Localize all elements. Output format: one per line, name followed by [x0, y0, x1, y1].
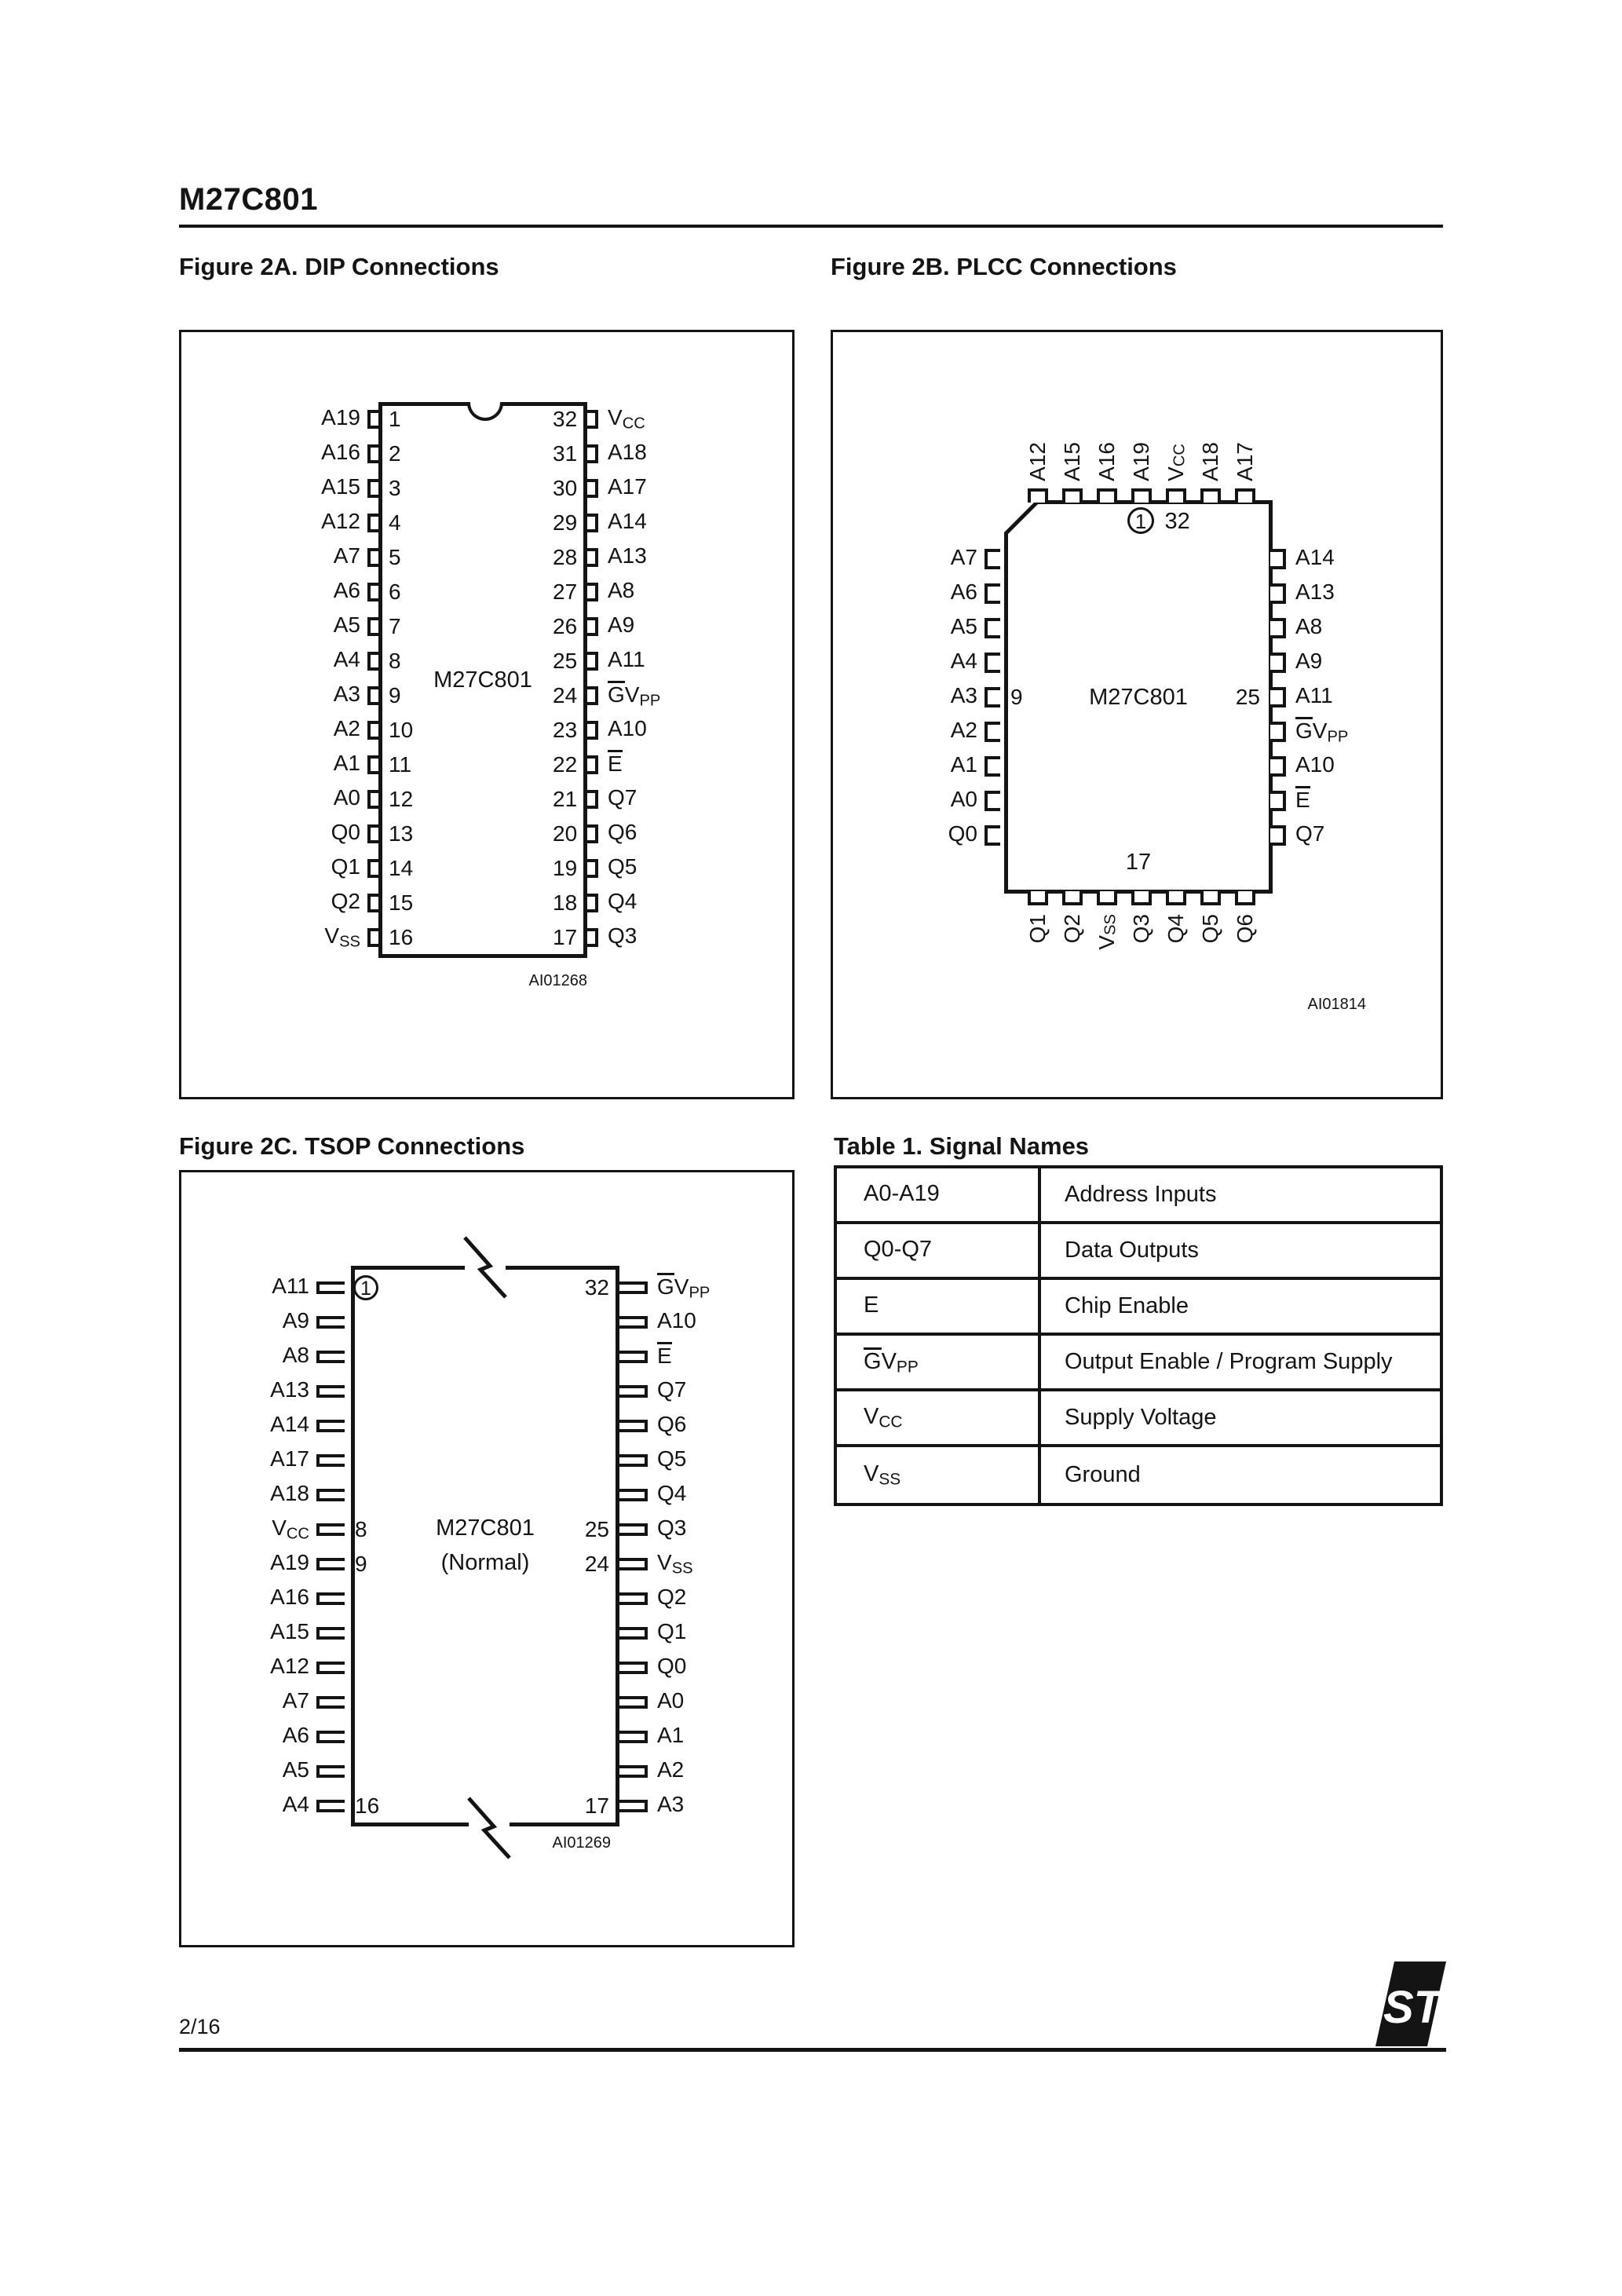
pin-label-text: A2 [951, 718, 977, 742]
pin-label-text: Q6 [657, 1412, 686, 1436]
pin-label-text: A5 [334, 612, 360, 637]
table-row: VCC Supply Voltage [837, 1391, 1440, 1447]
pin-label: A16 [1094, 442, 1123, 481]
pin-label: Q7 [648, 1377, 786, 1405]
pin-stub [367, 410, 378, 429]
pin-stub [587, 790, 598, 809]
pin-label-text: A11 [272, 1274, 309, 1298]
pin-stub [619, 1627, 648, 1640]
pin-row: A2 10 [243, 713, 432, 748]
pin-row: A15 3 [243, 471, 432, 506]
pin-stub [619, 1385, 648, 1398]
pin-stub [367, 617, 378, 636]
pin-stub [367, 548, 378, 567]
pin-cell: Q1 [1021, 891, 1055, 1033]
pin-label: Q1 [1025, 914, 1054, 943]
pin-row: 24 GVPP [553, 678, 732, 713]
pin-label: A4 [189, 1792, 316, 1819]
pin-label: A12 [189, 1654, 316, 1681]
pin-stub [587, 686, 598, 705]
pin-row: Q5 [582, 1443, 786, 1478]
pin-stub [985, 791, 1000, 811]
pin-row: 17 A3 [582, 1789, 786, 1823]
plcc-chip-label: M27C801 [1006, 685, 1270, 711]
overline-text: G [1295, 717, 1313, 743]
signal-name: GVPP [864, 1347, 919, 1377]
pin-number: 22 [553, 752, 587, 777]
pin-label-text: A9 [1295, 649, 1322, 673]
pin-number: 18 [553, 890, 587, 916]
pin-number: 5 [378, 545, 432, 570]
pin-label: A10 [648, 1308, 786, 1336]
signal-subscript: SS [879, 1470, 901, 1488]
pin-number: 27 [553, 579, 587, 605]
pin-row: A5 [853, 611, 1044, 645]
pin-label: A19 [1129, 442, 1157, 481]
overline-text: G [657, 1273, 674, 1299]
pin-stub [619, 1558, 648, 1570]
pin-label: Q2 [648, 1585, 786, 1612]
plcc-pin1-marker: 1 32 [1127, 507, 1190, 535]
pin1-circle-icon: 1 [1127, 507, 1154, 534]
pin-row: A1 [582, 1720, 786, 1754]
pin-row: 22 E [553, 748, 732, 782]
pin-row: Q7 [1233, 818, 1424, 853]
pin-label: GVPP [598, 681, 732, 710]
description-cell: Supply Voltage [1041, 1391, 1440, 1444]
pin-label: A14 [189, 1412, 316, 1439]
pin-label-text: A6 [951, 579, 977, 604]
pin-label-text: A1 [657, 1723, 684, 1747]
pin-row: A1 11 [243, 748, 432, 782]
pin-label: A5 [243, 612, 367, 640]
pin-number: 12 [378, 787, 432, 812]
st-logo-text: ST [1383, 1982, 1445, 2033]
pin-label-text: Q2 [1060, 914, 1084, 943]
pin-label-text: A2 [657, 1757, 684, 1782]
pin-label: A1 [853, 752, 985, 780]
pin-stub [985, 583, 1000, 604]
signal-cell: E [837, 1280, 1041, 1333]
pin-number: 32 [553, 407, 587, 432]
pin-row: A5 7 [243, 609, 432, 644]
pin-row: Q2 15 [243, 886, 432, 920]
pin-stub [619, 1489, 648, 1501]
pin-row: A2 [582, 1754, 786, 1789]
pin-label-subscript: CC [287, 1526, 309, 1543]
pin-row: 21 Q7 [553, 782, 732, 817]
pin-stub [587, 755, 598, 774]
pin-label-text: A16 [321, 440, 360, 464]
pin-label-subscript: CC [623, 415, 645, 433]
pin-stub [316, 1420, 345, 1432]
pin-stub [985, 653, 1000, 673]
tsop-top-break-icon [454, 1234, 520, 1300]
pin-stub [587, 894, 598, 912]
pin-label-text: Q6 [1233, 914, 1257, 943]
pin-stub [1097, 488, 1117, 503]
pin-label: A2 [243, 716, 367, 744]
pin-label-text: A13 [608, 543, 647, 568]
signal-text: E [864, 1292, 879, 1318]
pin-label-text: A18 [1198, 442, 1222, 481]
pin-label: A0 [243, 785, 367, 813]
pin-stub [1235, 488, 1255, 503]
pin-stub [316, 1558, 345, 1570]
pin-number: 17 [582, 1793, 619, 1819]
pin-label: Q4 [598, 889, 732, 916]
pin-label: VSS [243, 923, 367, 951]
pin-label-text: A17 [1233, 442, 1257, 481]
pin-stub [1097, 891, 1117, 905]
description-cell: Data Outputs [1041, 1224, 1440, 1277]
pin-stub [367, 894, 378, 912]
pin-stub [316, 1316, 345, 1329]
pin-stub [619, 1696, 648, 1709]
pin-label: A18 [1198, 442, 1226, 481]
page-title: M27C801 [179, 182, 318, 218]
pin-row: A11 1 [189, 1270, 403, 1305]
pin-row: A10 [1233, 749, 1424, 784]
pin-label-text: Q5 [608, 854, 637, 879]
pin-row: Q7 [582, 1374, 786, 1409]
pin-row: E [582, 1340, 786, 1374]
pin-label-text: Q2 [331, 889, 360, 913]
pin-label-text: A17 [270, 1446, 309, 1471]
pin-label-text: A18 [270, 1481, 309, 1505]
figure-2b-title: Figure 2B. PLCC Connections [831, 253, 1177, 281]
pin-row: 32 GVPP [582, 1270, 786, 1305]
description-cell: Address Inputs [1041, 1168, 1440, 1221]
figure-2a-title: Figure 2A. DIP Connections [179, 253, 499, 281]
pin-row: A6 [189, 1720, 403, 1754]
pin-number: 30 [553, 476, 587, 501]
pin-cell: VCC [1159, 371, 1193, 503]
tsop-figure-code: AI01269 [375, 1834, 611, 1852]
pin-stub [367, 721, 378, 740]
pin-label-text: Q7 [1295, 821, 1324, 846]
pin-label-text: A4 [283, 1792, 309, 1816]
page-number: 2/16 [179, 2015, 221, 2039]
overline-text: E [1295, 786, 1310, 812]
pin-stub [1270, 791, 1286, 811]
pin-number: 1 [353, 1275, 378, 1300]
pin-label-text: A17 [608, 474, 647, 499]
pin-cell: A16 [1090, 371, 1124, 503]
signal-name: Q0-Q7 [864, 1237, 932, 1265]
pin-row: GVPP [1233, 715, 1424, 749]
pin-stub [1270, 583, 1286, 604]
pin-label-text: Q6 [608, 820, 637, 844]
pin-cell: A12 [1021, 371, 1055, 503]
pin-number: 15 [378, 890, 432, 916]
pin-stub [587, 410, 598, 429]
pin-stub [587, 444, 598, 463]
pin-label-text: V [625, 682, 640, 707]
signal-text: V [864, 1461, 879, 1486]
pin-label-text: A3 [334, 682, 360, 706]
pin-label: A15 [243, 474, 367, 502]
signal-name: VCC [864, 1404, 903, 1432]
pin-label-text: A0 [951, 787, 977, 811]
pin-label: A17 [189, 1446, 316, 1474]
pin-row: A17 [189, 1443, 403, 1478]
pin-number: 29 [553, 510, 587, 536]
overline-text: E [608, 750, 623, 776]
pin-label-text: A10 [657, 1308, 696, 1333]
pin-label-text: A5 [951, 614, 977, 638]
pin-row: Q1 [582, 1616, 786, 1651]
pin-label: A9 [1286, 649, 1424, 676]
pin-label-text: Q4 [1164, 914, 1188, 943]
pin-number: 32 [582, 1275, 619, 1300]
pin-number: 16 [345, 1793, 403, 1819]
pin-row: Q6 [582, 1409, 786, 1443]
pin-label-text: A7 [951, 545, 977, 569]
pin-label: A15 [1060, 442, 1088, 481]
pin-label: A18 [189, 1481, 316, 1508]
pin-stub [1166, 488, 1186, 503]
pin-label-text: A13 [270, 1377, 309, 1402]
pin-label-text: A4 [334, 647, 360, 671]
pin-number: 21 [553, 787, 587, 812]
pin-row: A1 [853, 749, 1044, 784]
pin-row: 25 A11 [553, 644, 732, 678]
pin-number: 26 [553, 614, 587, 639]
signal-cell: VCC [837, 1391, 1041, 1444]
signal-name: E [864, 1292, 879, 1321]
description-cell: Ground [1041, 1447, 1440, 1503]
pin-label-text: A7 [334, 543, 360, 568]
pin-stub [1062, 891, 1083, 905]
signal-name: VSS [864, 1461, 901, 1490]
datasheet-page: M27C801 Figure 2A. DIP Connections M27C8… [0, 0, 1622, 2296]
pin-label-subscript: SS [1101, 914, 1119, 935]
pin-label: Q4 [1164, 914, 1192, 943]
pin-label-subscript: SS [339, 934, 360, 951]
pin-label-text: A9 [283, 1308, 309, 1333]
pin-number: 14 [378, 856, 432, 881]
pin-label: A9 [598, 612, 732, 640]
pin-label: Q7 [1286, 821, 1424, 849]
pin-row: A15 [189, 1616, 403, 1651]
pin-stub [316, 1454, 345, 1467]
pin-label: A1 [648, 1723, 786, 1750]
pin-stub [316, 1489, 345, 1501]
pin-row: 32 VCC [553, 402, 732, 437]
pin-label-text: A8 [608, 578, 634, 602]
pin-label-text: Q3 [1129, 914, 1153, 943]
pin-label-text: Q5 [1198, 914, 1222, 943]
pin-stub [316, 1765, 345, 1778]
pin-label-text: A15 [270, 1619, 309, 1643]
pin-stub [367, 928, 378, 947]
pin-number: 19 [553, 856, 587, 881]
pin-row: E [1233, 784, 1424, 818]
pin-label-text: Q0 [331, 820, 360, 844]
plcc-pin17-number: 17 [1006, 850, 1270, 876]
pin-label-text: A12 [1025, 442, 1050, 481]
pin-label-text: Q4 [608, 889, 637, 913]
pin-label: A13 [189, 1377, 316, 1405]
pin-label: A4 [853, 649, 985, 676]
pin-number: 16 [378, 925, 432, 950]
signal-cell: Q0-Q7 [837, 1224, 1041, 1277]
pin-stub [587, 859, 598, 878]
pin-label: Q0 [243, 820, 367, 847]
pin-label-text: A15 [1060, 442, 1084, 481]
signal-text: V [882, 1349, 897, 1374]
pin-row: A7 [853, 542, 1044, 576]
pin-label-subscript: CC [1171, 444, 1188, 466]
tsop-left-pin-column: A11 1 A9 A8 A13 A14 A17 A18 VCC 8 [189, 1270, 403, 1823]
signal-names-table: A0-A19 Address Inputs Q0-Q7 Data Outputs… [834, 1165, 1443, 1506]
pin-label: Q3 [598, 923, 732, 951]
pin-stub [587, 514, 598, 532]
pin-label: A9 [189, 1308, 316, 1336]
pin-row: 18 Q4 [553, 886, 732, 920]
description-cell: Output Enable / Program Supply [1041, 1336, 1440, 1388]
pin-label-text: A15 [321, 474, 360, 499]
pin-stub [985, 687, 1000, 707]
pin-stub [316, 1800, 345, 1812]
table-row: Q0-Q7 Data Outputs [837, 1224, 1440, 1280]
pin-row: A19 1 [243, 402, 432, 437]
pin-row: Q2 [582, 1581, 786, 1616]
pin-label: Q0 [648, 1654, 786, 1681]
header-rule [179, 225, 1443, 228]
pin-label-text: A1 [951, 752, 977, 777]
pin-stub [1270, 653, 1286, 673]
pin-label: VSS [1094, 914, 1123, 950]
pin-row: Q0 13 [243, 817, 432, 851]
pin-stub [587, 721, 598, 740]
pin-label: A11 [1286, 683, 1424, 711]
pin-label: A11 [189, 1274, 316, 1301]
pin-label: A8 [598, 578, 732, 605]
pin-label: A5 [189, 1757, 316, 1785]
pin-label-text: A0 [334, 785, 360, 810]
pin-number: 24 [553, 683, 587, 708]
pin-label-text: A8 [1295, 614, 1322, 638]
plcc-pin32-number: 32 [1164, 509, 1189, 534]
pin-label-text: A12 [270, 1654, 309, 1678]
pin-row: A12 [189, 1651, 403, 1685]
table-row: E Chip Enable [837, 1280, 1440, 1336]
pin-stub [1270, 756, 1286, 777]
pin-label: E [648, 1342, 786, 1371]
pin-label-text: A3 [657, 1792, 684, 1816]
pin-label-text: V [1094, 935, 1119, 950]
pin-cell: A15 [1055, 371, 1090, 503]
pin-label: Q3 [648, 1515, 786, 1543]
pin-label: A17 [1233, 442, 1261, 481]
pin-row: Q0 [582, 1651, 786, 1685]
pin-label: A12 [243, 509, 367, 536]
pin-label: A4 [243, 647, 367, 675]
overline-text: E [657, 1342, 672, 1368]
pin-number: 10 [378, 718, 432, 743]
pin-label: A7 [243, 543, 367, 571]
pin-row: A8 [189, 1340, 403, 1374]
pin-label: Q5 [648, 1446, 786, 1474]
pin-label: A17 [598, 474, 732, 502]
pin-row: A9 [1233, 645, 1424, 680]
pin-cell: Q2 [1055, 891, 1090, 1033]
pin-label-text: A19 [1129, 442, 1153, 481]
pin-label: A15 [189, 1619, 316, 1647]
pin-label: A13 [1286, 579, 1424, 607]
pin-label-text: Q7 [657, 1377, 686, 1402]
st-logo: ST [1375, 1961, 1446, 2046]
pin-row: Q4 [582, 1478, 786, 1512]
pin-stub [1028, 891, 1048, 905]
pin-label-text: Q2 [657, 1585, 686, 1609]
pin-row: A7 5 [243, 540, 432, 575]
pin-label-text: Q3 [657, 1515, 686, 1540]
pin-stub [1235, 891, 1255, 905]
pin-stub [316, 1385, 345, 1398]
pin-label: A3 [648, 1792, 786, 1819]
pin-label-text: A11 [608, 647, 645, 671]
tsop-chip-label-line1: M27C801 [351, 1515, 619, 1541]
pin-stub [587, 617, 598, 636]
pin-label: A3 [243, 682, 367, 709]
pin-number: 28 [553, 545, 587, 570]
pin-stub [316, 1627, 345, 1640]
pin-label: Q5 [598, 854, 732, 882]
description-cell: Chip Enable [1041, 1280, 1440, 1333]
pin-row: A0 [582, 1685, 786, 1720]
pin-label-text: A1 [334, 751, 360, 775]
pin-label-text: V [1313, 718, 1328, 743]
pin-row: A6 [853, 576, 1044, 611]
pin-label: A11 [598, 647, 732, 675]
pin-row: A2 [853, 715, 1044, 749]
pin-label: Q3 [1129, 914, 1157, 943]
pin-label: GVPP [1286, 717, 1424, 746]
pin-label-text: A4 [951, 649, 977, 673]
signal-cell: GVPP [837, 1336, 1041, 1388]
pin-label: E [598, 750, 732, 779]
pin-label-text: A14 [270, 1412, 309, 1436]
pin-label-text: A19 [270, 1550, 309, 1574]
pin-row: 23 A10 [553, 713, 732, 748]
pin-label: Q1 [648, 1619, 786, 1647]
pin-label-text: A6 [334, 578, 360, 602]
pin-label-text: Q1 [331, 854, 360, 879]
pin-row: A5 [189, 1754, 403, 1789]
pin-stub [316, 1731, 345, 1743]
pin-row: 27 A8 [553, 575, 732, 609]
pin-label: A5 [853, 614, 985, 642]
pin-stub [367, 583, 378, 601]
pin-stub [367, 444, 378, 463]
pin-row: A7 [189, 1685, 403, 1720]
pin-label: Q4 [648, 1481, 786, 1508]
pin-label: A12 [1025, 442, 1054, 481]
pin-stub [367, 479, 378, 498]
pin-number: 23 [553, 718, 587, 743]
pin-row: A12 4 [243, 506, 432, 540]
pin-stub [367, 859, 378, 878]
pin-label-text: A5 [283, 1757, 309, 1782]
pin-stub [587, 928, 598, 947]
pin-stub [1270, 722, 1286, 742]
signal-name: A0-A19 [864, 1181, 940, 1209]
dip-right-pin-column: 32 VCC 31 A18 30 A17 29 A14 28 A13 27 A8… [553, 402, 732, 955]
pin-stub [316, 1592, 345, 1605]
